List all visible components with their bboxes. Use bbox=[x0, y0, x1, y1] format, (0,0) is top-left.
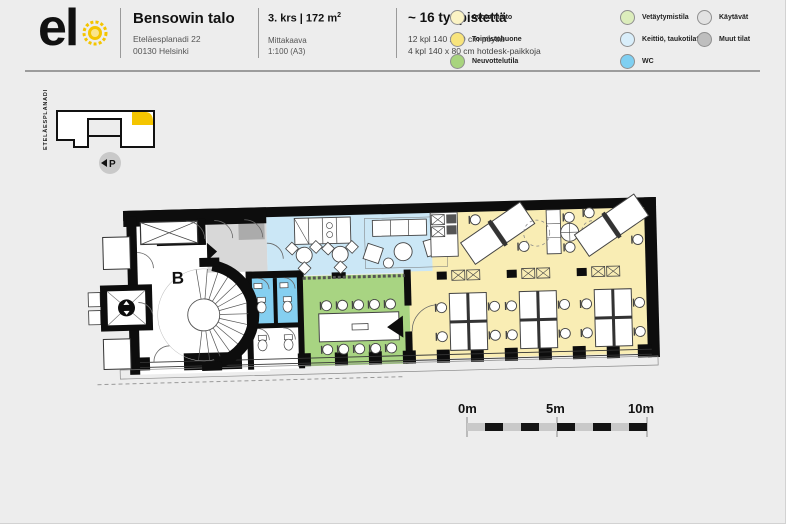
boundary-dashed-line bbox=[98, 377, 403, 385]
floor-plan-drawing: ETELÄESPLANADI P bbox=[0, 0, 786, 524]
floor-plan: B bbox=[86, 192, 660, 385]
storage-room bbox=[140, 221, 198, 244]
desk-clusters bbox=[435, 288, 645, 350]
floorplan-page: el Bensowin talo Eteläesplanadi 22 00130… bbox=[0, 0, 786, 524]
site-map-courtyard bbox=[88, 119, 121, 136]
elevator bbox=[100, 284, 153, 331]
scale-bar: 0m 5m 10m bbox=[458, 401, 654, 437]
svg-text:P: P bbox=[109, 159, 116, 170]
parking-icon: P bbox=[99, 152, 121, 174]
scale-label-0m: 0m bbox=[458, 401, 477, 416]
scale-label-10m: 10m bbox=[628, 401, 654, 416]
site-map-highlight-corner bbox=[132, 112, 153, 125]
stairwell-label: B bbox=[171, 268, 184, 287]
scale-label-5m: 5m bbox=[546, 401, 565, 416]
site-map-street-label: ETELÄESPLANADI bbox=[42, 89, 49, 150]
site-map: ETELÄESPLANADI P bbox=[42, 89, 154, 174]
